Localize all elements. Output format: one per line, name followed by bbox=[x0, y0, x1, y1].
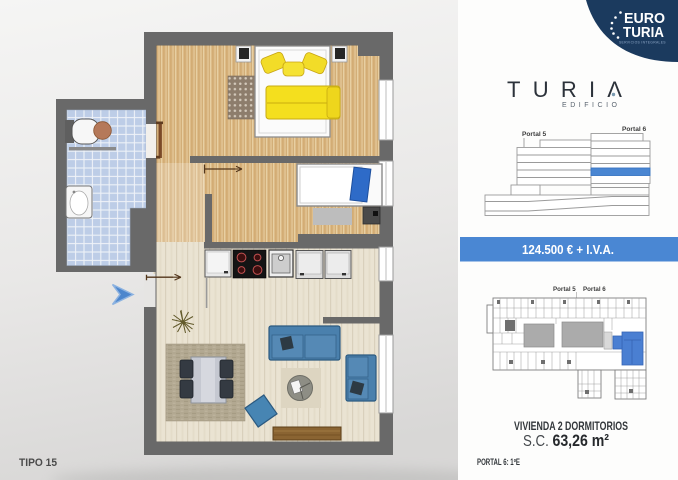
svg-text:Portal 5: Portal 5 bbox=[553, 286, 576, 293]
svg-text:Portal 6: Portal 6 bbox=[583, 286, 606, 293]
svg-text:SERVICIOS INTEGRALES: SERVICIOS INTEGRALES bbox=[619, 41, 666, 45]
svg-text:PORTAL 6: 1ºE: PORTAL 6: 1ºE bbox=[477, 457, 520, 467]
svg-text:TIPO 15: TIPO 15 bbox=[19, 457, 57, 469]
svg-text:TURIA: TURIA bbox=[623, 25, 664, 41]
svg-text:Portal 5: Portal 5 bbox=[522, 131, 547, 138]
svg-text:Portal 6: Portal 6 bbox=[622, 126, 647, 133]
svg-text:S.C. 63,26 m²: S.C. 63,26 m² bbox=[523, 432, 609, 450]
svg-text:124.500 € + I.V.A.: 124.500 € + I.V.A. bbox=[522, 242, 614, 257]
